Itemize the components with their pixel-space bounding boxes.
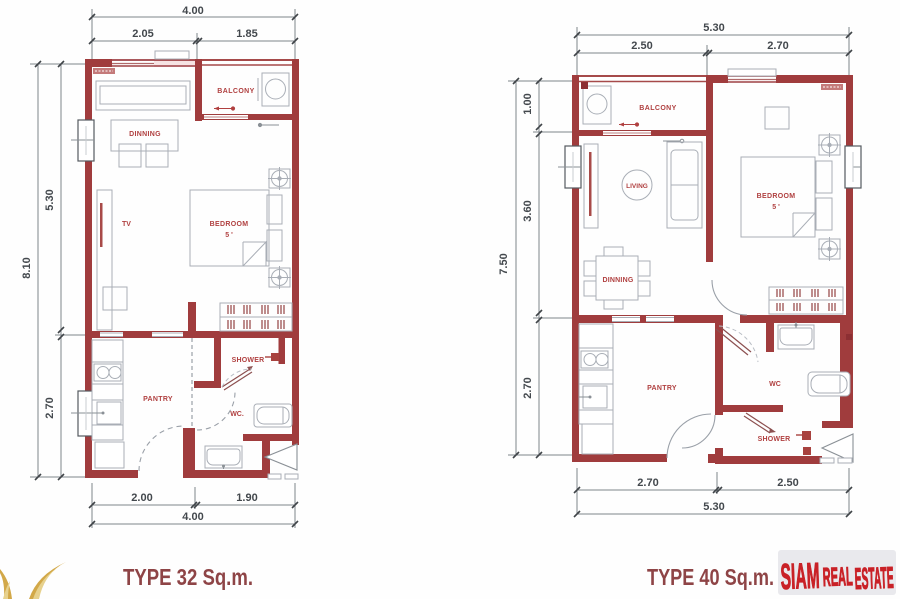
svg-text:TV: TV [122, 221, 131, 228]
svg-text:2.70: 2.70 [767, 40, 788, 52]
svg-text:1.90: 1.90 [236, 492, 257, 504]
svg-text:7.50: 7.50 [498, 253, 510, 274]
svg-text:WC: WC [769, 381, 781, 388]
svg-text:2.50: 2.50 [631, 40, 652, 52]
svg-text:2.05: 2.05 [132, 28, 153, 40]
svg-text:2.70: 2.70 [637, 477, 658, 489]
svg-text:SHOWER: SHOWER [232, 357, 265, 364]
svg-text:BEDROOM: BEDROOM [757, 193, 796, 200]
svg-text:1.85: 1.85 [236, 28, 257, 40]
svg-text:5.30: 5.30 [703, 22, 724, 34]
svg-text:REAL: REAL [822, 561, 853, 592]
svg-text:BALCONY: BALCONY [217, 88, 254, 95]
svg-text:BALCONY: BALCONY [639, 105, 676, 112]
svg-text:5 ': 5 ' [225, 232, 233, 239]
svg-text:3.60: 3.60 [522, 200, 534, 221]
svg-text:LIVING: LIVING [626, 183, 648, 190]
svg-text:ESTATE: ESTATE [854, 562, 894, 596]
svg-text:2.00: 2.00 [131, 492, 152, 504]
svg-text:1.00: 1.00 [522, 93, 534, 114]
svg-text:5 ': 5 ' [772, 204, 780, 211]
svg-text:SHOWER: SHOWER [758, 436, 791, 443]
svg-text:2.70: 2.70 [522, 377, 534, 398]
svg-text:5.30: 5.30 [703, 501, 724, 513]
svg-text:8.10: 8.10 [21, 257, 33, 278]
svg-text:2.70: 2.70 [44, 397, 56, 418]
svg-text:DINNING: DINNING [129, 131, 161, 138]
svg-text:BEDROOM: BEDROOM [210, 221, 249, 228]
svg-text:4.00: 4.00 [182, 511, 203, 523]
svg-text:4.00: 4.00 [182, 5, 203, 17]
svg-text:2.50: 2.50 [777, 477, 798, 489]
svg-text:PANTRY: PANTRY [143, 396, 173, 403]
svg-text:TYPE 32 Sq.m.: TYPE 32 Sq.m. [123, 564, 253, 590]
svg-text:PANTRY: PANTRY [647, 385, 677, 392]
svg-text:TYPE 40 Sq.m.: TYPE 40 Sq.m. [647, 564, 774, 590]
svg-text:SIAM: SIAM [780, 555, 820, 597]
svg-text:5.30: 5.30 [44, 189, 56, 210]
svg-text:WC.: WC. [230, 411, 244, 418]
svg-text:DINNING: DINNING [603, 277, 634, 284]
